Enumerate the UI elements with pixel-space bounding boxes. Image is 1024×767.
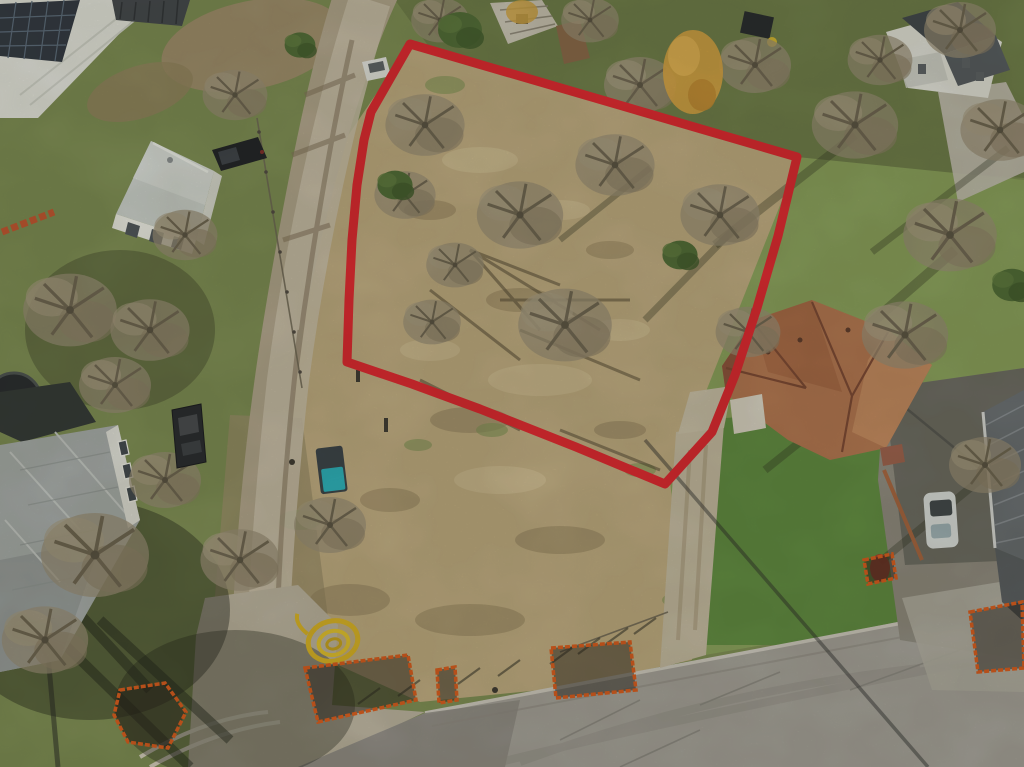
grain-overlay [0, 0, 1024, 767]
aerial-photo [0, 0, 1024, 767]
aerial-photo-canvas [0, 0, 1024, 767]
